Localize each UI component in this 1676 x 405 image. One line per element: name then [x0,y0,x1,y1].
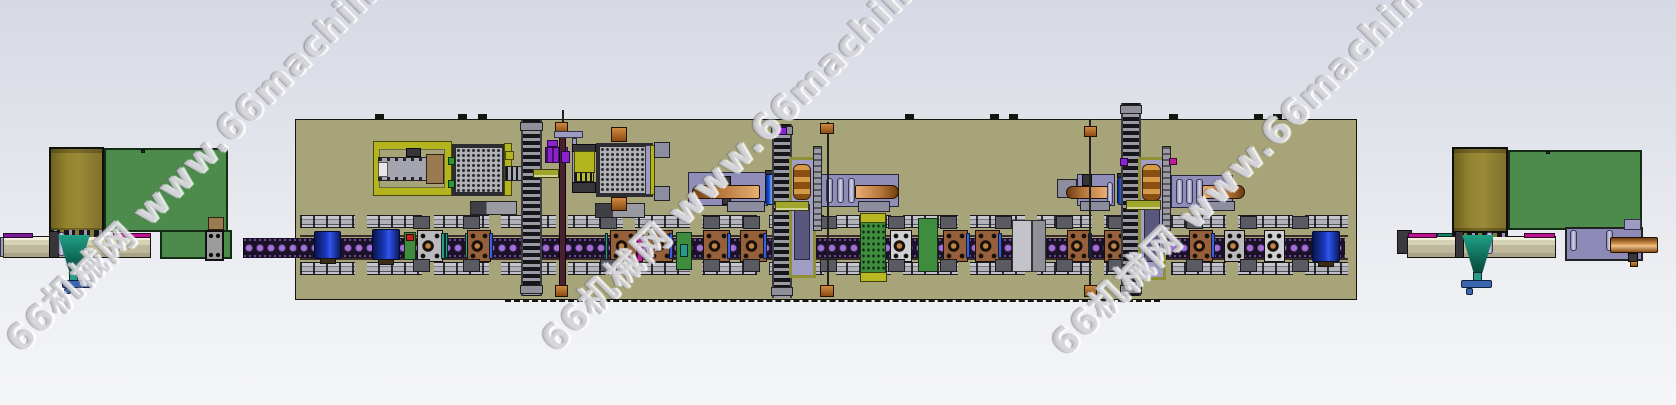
pallet-strip [1211,233,1215,258]
lavender-bracket [1624,219,1641,230]
purple-connector [547,140,558,147]
rod-cap [820,123,834,134]
fixture-column [1144,204,1160,262]
drive-roller [314,231,341,259]
rod-cap [1084,126,1097,137]
clamp-block [995,259,1012,272]
clamp-block [1186,259,1203,272]
linear-unit [470,201,517,215]
pallet-strip [669,233,673,259]
rod-bracket [554,131,583,138]
tray-pad [448,180,455,188]
magenta-connector [1169,158,1177,165]
plate-dot [141,150,145,153]
pallet [1067,230,1090,262]
pallet [610,230,637,262]
tray-pad [448,157,455,165]
mount-tick [1273,114,1282,120]
clamp-block [600,259,617,272]
mount-tick [1254,114,1263,120]
arm-base [1080,201,1110,211]
station2-yellow-bar [775,201,809,211]
clamp-block [1292,216,1309,229]
stopper-plate [918,218,938,272]
right-view-copper-cylinder [1610,237,1658,253]
mount-tick [905,114,914,120]
grid-tray [452,144,506,196]
mount-tick [1009,114,1018,120]
sensor-cap [406,234,414,241]
right-view-green-plate [1508,150,1642,230]
tray-clamp [611,127,627,142]
pallet-guide [445,233,448,258]
purple-connector [561,151,570,163]
fixture-chip [505,151,514,160]
gantry-column [521,120,542,296]
foot-bracket [1466,288,1473,295]
left-view-screw-plate [205,230,224,261]
cylinder-pill [1186,179,1193,204]
pallet-strip [966,233,970,258]
cad-viewport: 66机械网 www.66machine.com66机械网 www.66machi… [0,0,1676,405]
pallet-strip [727,233,731,259]
arm-base [727,201,765,212]
clamp-block [888,259,905,272]
clamp-block [463,259,480,272]
corner-bracket [654,142,670,158]
pallet-strip [763,233,767,259]
clamp-block [703,259,720,272]
purple-connector [1120,158,1128,166]
lift-slab [1012,220,1032,272]
robot-arm [855,185,899,199]
pallet [703,230,730,262]
pallet [1264,230,1285,262]
perforated-plate-cap [860,213,886,223]
pallet [417,230,443,262]
perforated-plate-cap [860,272,887,282]
foot-bracket [64,288,71,294]
cylinder-pill [1176,179,1183,204]
hidden-edge-dashes [505,299,1160,302]
arm-base [1205,201,1235,211]
plate-dot [1546,151,1550,154]
cylinder-tip [1630,261,1638,267]
robot-arm [1202,185,1245,199]
corner-bracket [654,186,670,201]
clamp-block [743,216,760,229]
feeder-dark [572,182,596,193]
roller-base [320,258,336,264]
pallet [1189,230,1213,262]
clamp-block [995,216,1012,229]
arm-base [858,201,890,212]
bar-strip [113,233,151,238]
fixture-cams [793,164,811,200]
rod-cap [555,285,568,297]
sensor-bit [680,244,688,257]
clamp-block [1292,259,1309,272]
lift-slab [1032,220,1046,272]
clamp-block [1056,259,1073,272]
clamp-block [413,216,430,229]
station1-yellow-bar [533,169,559,178]
bar-strip [3,233,33,238]
right-view-gold-cabinet [1452,147,1508,233]
clamp-block [413,259,430,272]
drive-roller [1312,231,1340,262]
mount-tick [375,114,384,120]
pallet-strip [489,233,493,259]
section-rod [1089,119,1091,297]
mount-tick [478,114,487,120]
fixture-column [794,204,810,260]
pallet [975,230,1000,262]
pallet-strip [998,233,1002,258]
mount-tick [1169,114,1178,120]
mount-tick [990,114,999,120]
clamp-block [1240,216,1257,229]
pallet-strip [441,233,445,259]
fixture-cams [1142,164,1161,201]
clamp-block [703,216,720,229]
pallet-guide [605,233,608,260]
cylinder-pill [1570,230,1577,251]
cylinder-pill [837,178,844,203]
station1-mark [406,148,421,157]
rod-cap [1084,285,1097,297]
rod-cap [820,285,834,297]
station3-yellow-bar [1126,200,1161,210]
left-view-tan-box [208,217,224,230]
feeder-yellow [574,151,595,173]
pallet [1224,230,1245,262]
foot-bracket [62,280,92,288]
pallet [890,230,912,262]
feeder-comb [574,172,594,182]
station1-tan-carriage [426,154,444,184]
tray-clamp [611,197,627,211]
foot-bracket [1461,280,1492,288]
pallet-strip [637,233,643,262]
purple-connector [777,127,787,135]
pallet [467,230,491,262]
clamp-block [1186,216,1203,229]
robot-arm [1066,186,1108,199]
clamp-block [743,259,760,272]
roller-base [1318,261,1334,267]
pallet [943,230,968,262]
bar-endcap [0,237,4,257]
drive-roller [372,229,400,260]
cylinder-pill [848,178,855,203]
station1-slider [378,162,388,177]
clamp-block [1240,259,1257,272]
perforated-plate [860,222,886,273]
mount-tick [458,114,467,120]
bar-strip [1408,233,1437,238]
section-rod [827,122,829,297]
clamp-block [463,216,480,229]
bar-strip [1524,233,1555,238]
clamp-block [888,216,905,229]
roller-base [378,259,394,265]
clamp-block [1056,216,1073,229]
clamp-block [940,216,957,229]
clamp-block [940,259,957,272]
left-view-gold-cabinet [49,147,104,233]
robot-arm [692,185,760,199]
